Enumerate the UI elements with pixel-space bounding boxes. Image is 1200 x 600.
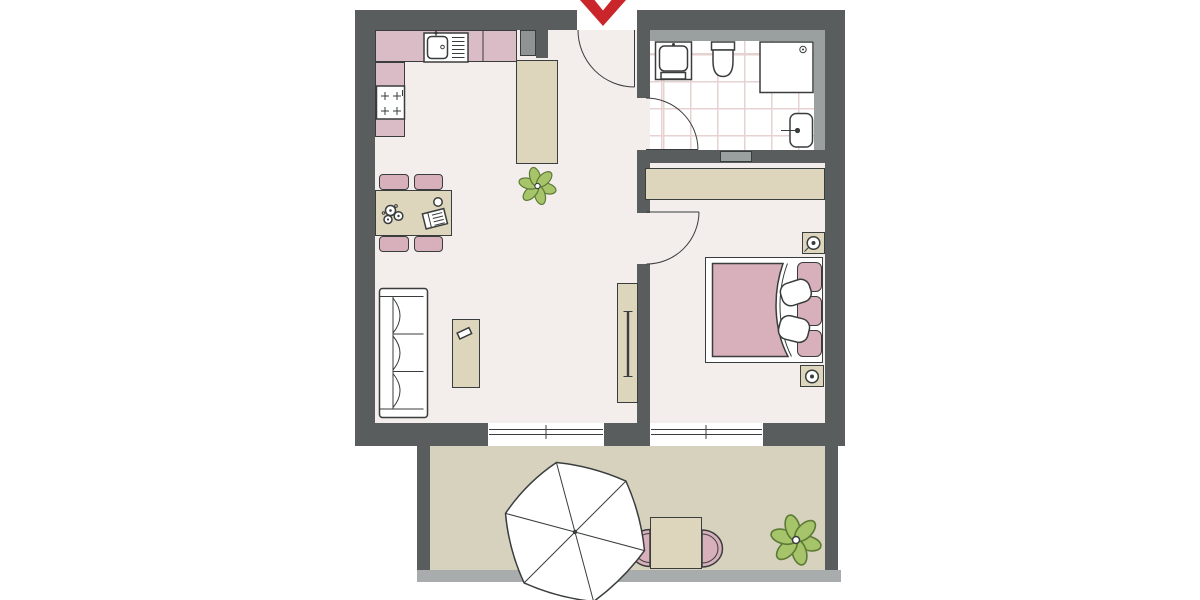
headboard-cushion <box>797 262 822 292</box>
nightstand-top <box>802 232 825 254</box>
entry-wardrobe <box>516 60 558 164</box>
floor-plan <box>0 0 1200 600</box>
terrace-wall-left <box>417 446 430 570</box>
headboard-cushion <box>797 330 822 357</box>
headboard-cushion <box>797 296 822 326</box>
window-bedroom <box>650 423 763 446</box>
coffee-table <box>452 319 480 388</box>
outer-wall-bottom-right <box>763 423 845 446</box>
outer-wall-left <box>355 10 375 446</box>
outer-wall-bottom-mid <box>604 423 650 446</box>
window-living-room <box>488 423 604 446</box>
bathroom-floor-tiles <box>650 41 814 150</box>
bedroom-wardrobe <box>645 168 825 200</box>
kitchen-counter-left <box>375 62 405 137</box>
bathroom-wall-left <box>637 30 650 98</box>
hall-wall-stub <box>536 30 548 58</box>
kitchen-counter-top <box>375 30 517 62</box>
outer-wall-top-right <box>637 10 845 30</box>
terrace-railing <box>417 570 841 582</box>
dining-chair <box>379 236 409 252</box>
bathroom-wall-finish-right <box>814 41 825 150</box>
nightstand-bottom <box>800 365 824 387</box>
dining-chair <box>414 174 443 190</box>
dining-chair <box>414 236 443 252</box>
outer-wall-top-left <box>355 10 577 30</box>
utility-shaft <box>520 30 536 56</box>
terrace-table <box>650 517 702 569</box>
terrace-floor <box>430 446 825 570</box>
dining-chair <box>379 174 409 190</box>
tv-sideboard <box>617 283 638 403</box>
terrace-wall-right <box>825 446 838 570</box>
bedroom-wall <box>637 264 650 423</box>
wall-vent <box>720 151 752 162</box>
outer-wall-bottom-left <box>355 423 488 446</box>
bathroom-wall-finish-top <box>650 30 825 41</box>
outer-wall-right <box>825 10 845 446</box>
entrance-arrow-icon <box>580 0 626 26</box>
dining-table <box>375 190 452 236</box>
